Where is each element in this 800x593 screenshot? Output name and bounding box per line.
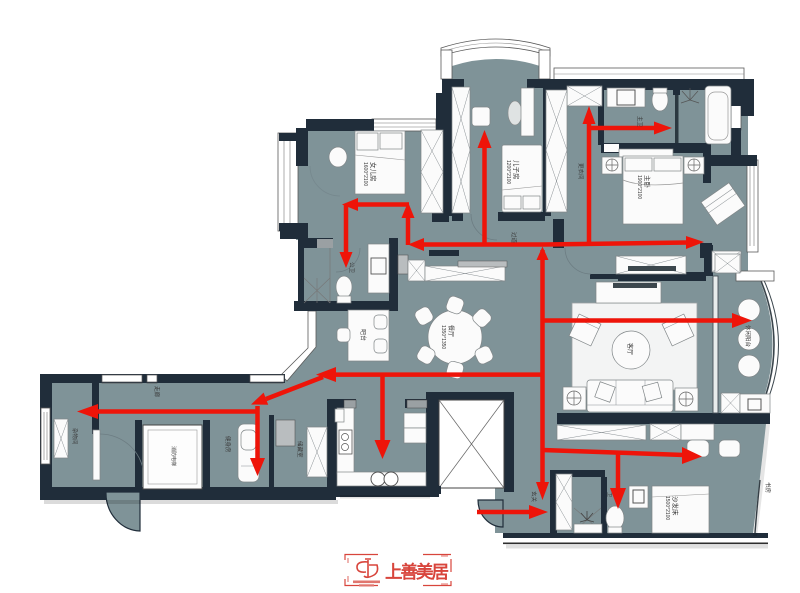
svg-text:公卫: 公卫 <box>348 262 355 274</box>
svg-text:1500*2100: 1500*2100 <box>664 496 670 520</box>
svg-text:走廊: 走廊 <box>153 386 161 398</box>
svg-text:儿子房: 儿子房 <box>512 160 521 180</box>
svg-text:过道: 过道 <box>510 232 518 244</box>
svg-text:主卧: 主卧 <box>643 175 652 189</box>
svg-text:沙发床: 沙发床 <box>671 496 680 516</box>
svg-text:1600*2100: 1600*2100 <box>362 162 368 186</box>
svg-text:杂物间: 杂物间 <box>71 428 79 445</box>
svg-text:储藏室: 储藏室 <box>296 441 304 458</box>
svg-text:上善美居: 上善美居 <box>385 562 449 582</box>
svg-text:吧台: 吧台 <box>359 329 367 341</box>
svg-text:1900*2100: 1900*2100 <box>636 175 642 199</box>
svg-text:玄关: 玄关 <box>530 491 538 503</box>
svg-text:1350*1350: 1350*1350 <box>440 325 446 349</box>
svg-text:卫: 卫 <box>606 492 612 497</box>
svg-text:主卫: 主卫 <box>636 116 644 128</box>
svg-text:健身房: 健身房 <box>224 436 232 453</box>
svg-text:休闲阳台: 休闲阳台 <box>744 325 752 348</box>
svg-text:消防电梯: 消防电梯 <box>170 446 177 466</box>
svg-text:更衣间: 更衣间 <box>577 163 585 180</box>
svg-text:书房: 书房 <box>764 482 772 494</box>
svg-text:1200*2100: 1200*2100 <box>505 160 511 184</box>
svg-text:餐厅: 餐厅 <box>447 325 455 337</box>
svg-text:女儿房: 女儿房 <box>369 162 378 182</box>
svg-text:客厅: 客厅 <box>626 343 634 355</box>
